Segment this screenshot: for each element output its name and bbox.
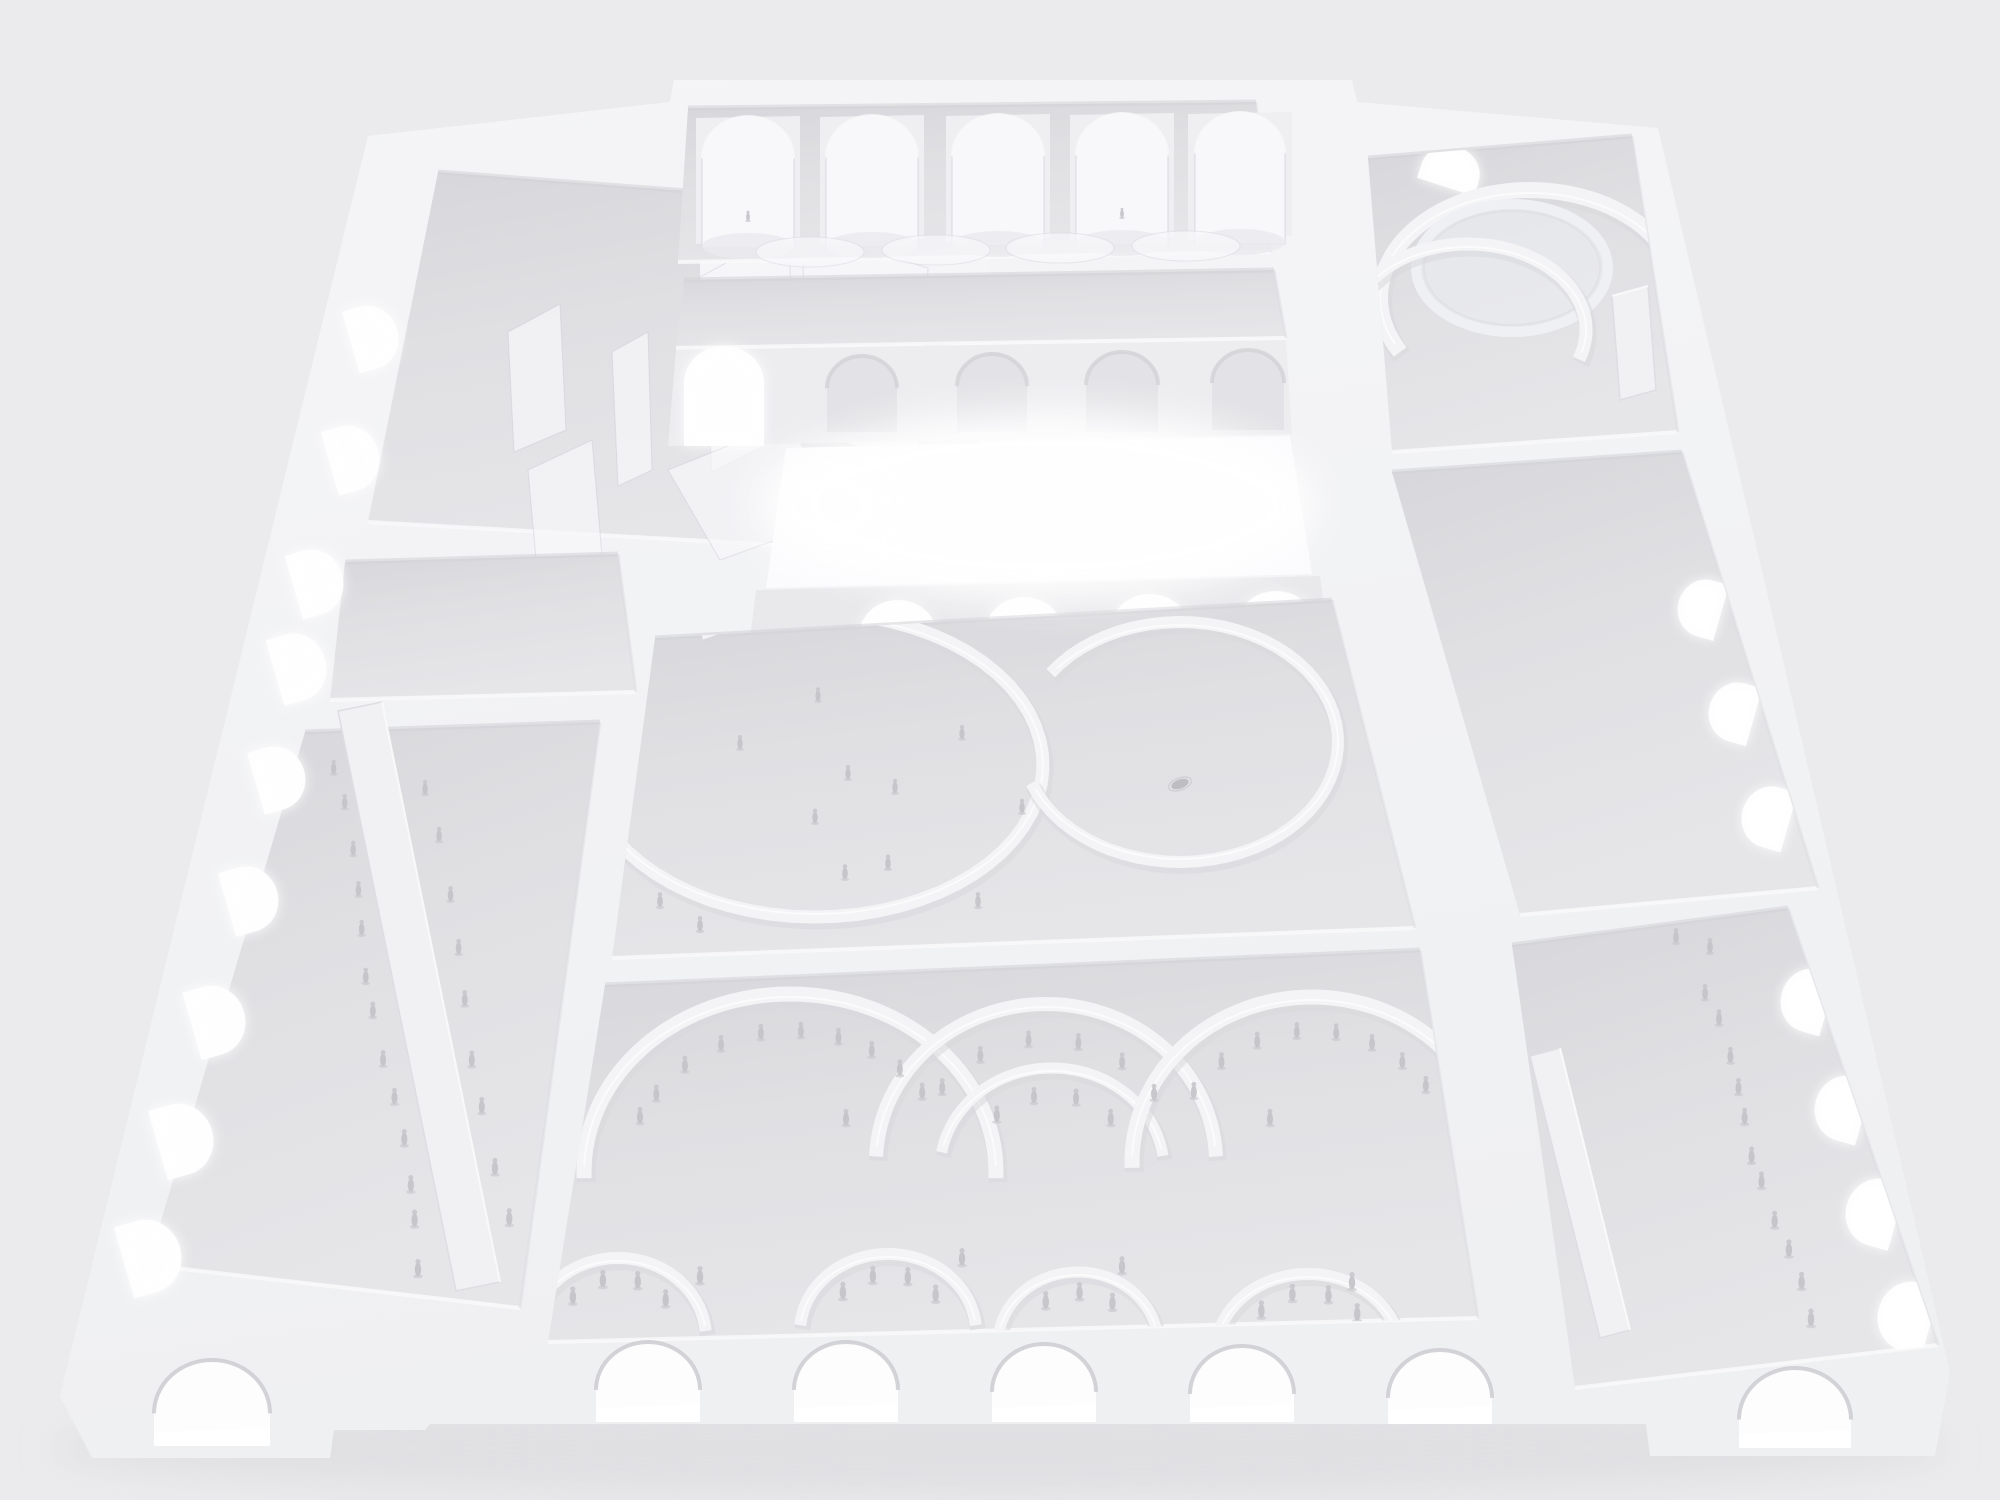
room-rotunda-hall	[587, 600, 1415, 958]
floor-anteroom	[330, 554, 636, 700]
render-viewport	[0, 0, 2000, 1500]
room-arched-niches-hall	[678, 102, 1292, 267]
architectural-model-3d-render	[0, 0, 2000, 1500]
floor-arcade-corridor	[676, 270, 1286, 348]
room-drum-room	[1361, 136, 1678, 452]
overexposed-glow	[748, 445, 908, 565]
room-crowd-hall	[530, 950, 1494, 1349]
